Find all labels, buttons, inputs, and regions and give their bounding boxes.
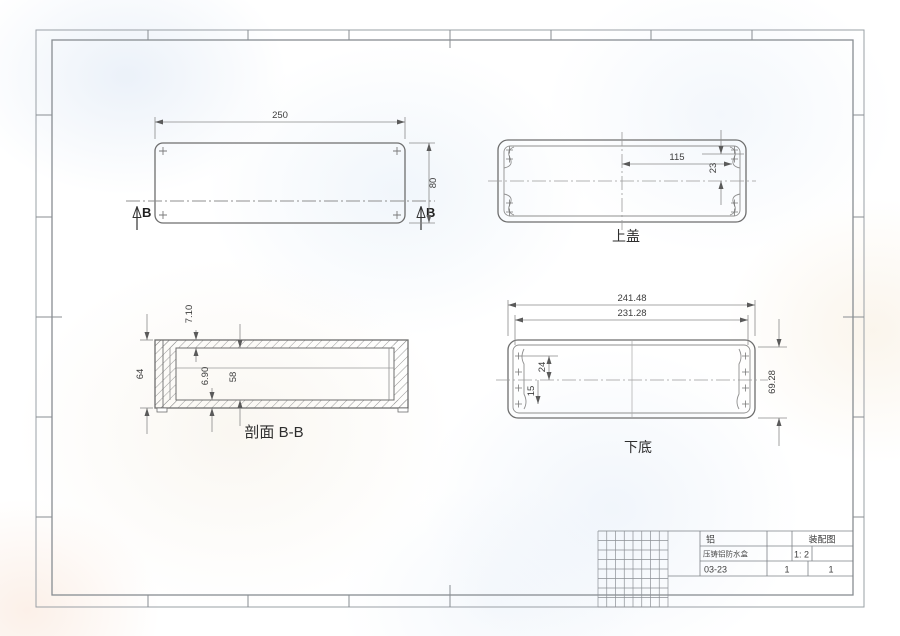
dim-bottom-wall-690: 6.90 <box>200 367 212 432</box>
foot-right <box>398 408 408 412</box>
dim-value: 58 <box>228 372 239 383</box>
zone-ticks-left <box>36 115 62 517</box>
dim-inner-height-58: 58 <box>228 324 240 426</box>
dim-value: 23 <box>708 163 719 174</box>
view-label-bottom-base: 下底 <box>624 439 652 455</box>
dim-value: 115 <box>669 152 684 163</box>
view-section-bb: 64 7.10 6.90 58 剖面 B-B <box>135 305 408 441</box>
drawing-sheet: B B 250 80 <box>0 0 900 636</box>
dim-height-6928: 69.28 <box>758 319 787 446</box>
dim-value: 250 <box>272 110 288 121</box>
dim-value: 64 <box>135 369 146 380</box>
engineering-drawing-canvas: B B 250 80 <box>0 0 900 636</box>
dim-value: 7.10 <box>184 305 195 324</box>
dim-value: 15 <box>526 386 537 397</box>
dim-value: 231.28 <box>617 308 646 319</box>
dim-value: 24 <box>537 362 548 373</box>
dim-top-wall-710: 7.10 <box>184 305 196 362</box>
dim-value: 241.48 <box>617 293 646 304</box>
view-bottom-base: 241.48 231.28 69.28 24 <box>496 293 787 455</box>
zone-ticks-top <box>148 30 752 48</box>
quantity-value: 1 <box>784 565 789 575</box>
section-label-left: B <box>142 205 151 220</box>
section-label-right: B <box>426 205 435 220</box>
part-name-label: 压铸铝防水盒 <box>703 549 748 559</box>
dim-value: 6.90 <box>200 367 211 386</box>
dim-upper-hole-24: 24 <box>522 356 558 380</box>
view-label-section: 剖面 B-B <box>244 424 303 441</box>
dim-width-250: 250 <box>155 110 405 139</box>
section-hatching <box>155 340 408 408</box>
dim-outer-height-64: 64 <box>135 314 153 434</box>
dim-lower-hole-15: 15 <box>526 380 538 404</box>
zone-ticks-bottom <box>148 585 450 607</box>
scale-value: 1: 2 <box>794 550 809 560</box>
dim-value: 80 <box>428 178 439 189</box>
view-top-cover: 115 23 上盖 <box>488 130 756 244</box>
foot-left <box>157 408 167 412</box>
corner-hole-crosses <box>159 147 401 219</box>
material-label: 铝 <box>706 534 715 545</box>
sheet-number-value: 1 <box>828 565 833 575</box>
view-top-plan: B B 250 80 <box>126 110 439 230</box>
view-label-top-cover: 上盖 <box>612 228 640 244</box>
doc-type-label: 装配图 <box>808 534 835 545</box>
drawing-number: 03-23 <box>704 565 727 575</box>
dim-value: 69.28 <box>767 370 778 394</box>
drawing-frame <box>36 30 864 607</box>
